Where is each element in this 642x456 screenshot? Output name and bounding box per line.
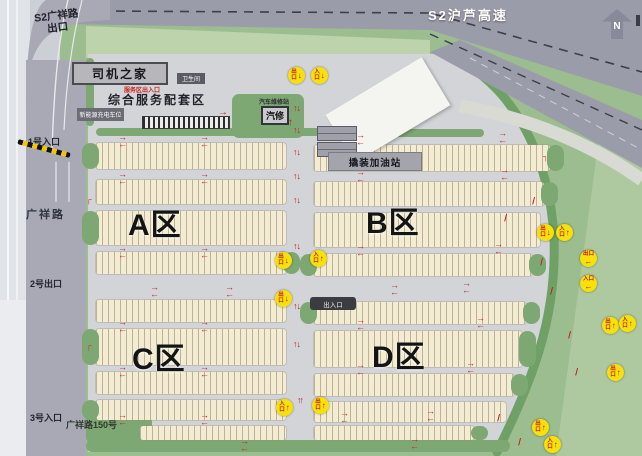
flow-arrow: →← xyxy=(200,171,209,185)
charging-label: 新能源充电车位 xyxy=(79,110,121,119)
flow-arrow: ↑↓ xyxy=(293,340,300,349)
flow-arrow: →← xyxy=(390,282,399,296)
gate-badge: 入口← xyxy=(580,275,597,292)
highway-label: S2沪芦高速 xyxy=(428,5,508,24)
flow-arrow-glyph: ← xyxy=(118,178,127,185)
zone-label-d: D区 xyxy=(372,332,426,376)
gate-badge: 出口← xyxy=(580,250,597,267)
gate-house-label: 出入口 xyxy=(323,299,343,309)
flow-arrow: ↑↓ xyxy=(293,242,300,251)
flow-arrow-glyph: ← xyxy=(426,415,435,422)
gate-badge-text: 出 口 xyxy=(610,367,616,378)
flow-arrow: →← xyxy=(118,134,127,148)
flow-arrow: →← xyxy=(356,243,365,257)
row-green-cap xyxy=(511,374,528,396)
gate-badge-text: 入 口 xyxy=(622,318,628,329)
flow-arrow-glyph: ← xyxy=(118,326,127,333)
gate-badge-text: 出 口 xyxy=(535,422,541,433)
flow-arrow: →← xyxy=(476,315,485,329)
row-green-cap xyxy=(519,331,536,367)
flow-arrow: ┐ xyxy=(543,153,549,161)
flow-arrow: →← xyxy=(118,171,127,185)
flow-arrow: ↑↓ xyxy=(293,104,300,113)
flow-arrow: →← xyxy=(240,438,249,452)
flow-arrow: ┌ xyxy=(86,196,92,204)
flow-arrow: →← xyxy=(498,130,507,144)
gate-badge-text: 出 口 xyxy=(278,293,284,304)
gate-badge: 出 口↓ xyxy=(275,252,292,269)
gate-badge-arrow-icon: ↑ xyxy=(286,404,290,411)
flow-arrow: →← xyxy=(340,410,349,424)
gate-badge-text: 入 口 xyxy=(279,402,285,413)
driver-home-label: 司机之家 xyxy=(92,65,148,82)
row-green-cap xyxy=(82,143,99,169)
row-green-cap xyxy=(471,426,488,440)
parking-row xyxy=(96,211,286,245)
compass-tick xyxy=(636,15,640,26)
flow-arrow: →← xyxy=(150,284,159,298)
flow-arrow-glyph: ← xyxy=(200,419,209,426)
flow-arrow: ↑↑ xyxy=(297,396,302,405)
parking-row xyxy=(314,374,514,396)
flow-arrow: ↑↓ xyxy=(293,196,300,205)
gate-badge-arrow-icon: ↓ xyxy=(321,72,325,79)
flow-arrow: →← xyxy=(118,364,127,378)
gate-badge-arrow-icon: ← xyxy=(585,258,593,265)
flow-arrow-glyph: ← xyxy=(356,250,365,257)
exit2-label: 2号出口 xyxy=(30,277,62,290)
flow-arrow-glyph: ← xyxy=(150,291,159,298)
parking-row xyxy=(314,182,544,206)
flow-arrow-glyph: ← xyxy=(200,252,209,259)
flow-arrow-glyph: ↓ xyxy=(297,148,301,157)
flow-arrow: →← xyxy=(200,245,209,259)
flow-arrow: →← xyxy=(426,408,435,422)
flow-arrow-glyph: ↓ xyxy=(297,196,301,205)
gate-badge-arrow-icon: ↑ xyxy=(629,320,633,327)
zone-label-a: A区 xyxy=(128,200,182,244)
gate-badge: 出 口↓ xyxy=(537,224,554,241)
flow-arrow: → xyxy=(218,108,228,118)
flow-arrow: ↑↓ xyxy=(293,148,300,157)
station-structure xyxy=(317,126,357,141)
north-letter: N xyxy=(602,21,632,32)
gate-badge-arrow-icon: ↑ xyxy=(322,402,326,409)
flow-arrow-glyph: ← xyxy=(390,289,399,296)
flow-arrow-glyph: ┌ xyxy=(86,342,92,350)
flow-arrow-glyph: ← xyxy=(118,252,127,259)
flow-arrow: →← xyxy=(118,245,127,259)
flow-arrow-glyph: ← xyxy=(200,326,209,333)
flow-arrow: →← xyxy=(356,317,365,331)
gate-badge: 入 口↑ xyxy=(310,250,327,267)
flow-arrow-glyph: ← xyxy=(200,141,209,148)
restroom-label: 卫生间 xyxy=(182,74,200,83)
gas-station-building: 撬装加油站 xyxy=(328,152,422,171)
gate-badge-text: 出 口 xyxy=(605,320,611,331)
gate-badge-text: 入 口 xyxy=(559,227,565,238)
gate-badge: 出 口↓ xyxy=(288,67,305,84)
flow-arrow: →← xyxy=(200,364,209,378)
flow-arrow-glyph: ┌ xyxy=(86,196,92,204)
flow-arrow-glyph: ← xyxy=(118,419,127,426)
flow-arrow-glyph: ← xyxy=(498,137,507,144)
row-green-cap xyxy=(547,145,564,171)
flow-arrow-glyph: ← xyxy=(118,371,127,378)
gate-badge: 入 口↑ xyxy=(619,315,636,332)
repair-station-note: 汽车维修站 xyxy=(259,97,289,106)
gate-badge: 出 口↑ xyxy=(532,419,549,436)
gate-badge-arrow-icon: ↓ xyxy=(298,72,302,79)
flow-arrow-glyph: ↓ xyxy=(297,172,301,181)
flow-arrow: →← xyxy=(494,241,503,255)
flow-arrow: →← xyxy=(500,167,509,181)
flow-arrow: →← xyxy=(200,134,209,148)
gate-badge: 出 口↓ xyxy=(275,290,292,307)
restroom-building: 卫生间 xyxy=(177,73,205,84)
flow-arrow: →← xyxy=(356,169,365,183)
flow-arrow: →← xyxy=(410,436,419,450)
row-green-cap xyxy=(523,302,540,324)
gate-badge-arrow-icon: ↓ xyxy=(285,295,289,302)
flow-arrow-glyph: → xyxy=(218,108,228,118)
flow-arrow: →← xyxy=(356,132,365,146)
gate-badge-text: 出 口 xyxy=(315,400,321,411)
gate-badge-arrow-icon: ↑ xyxy=(566,229,570,236)
flow-arrow-glyph: ← xyxy=(466,367,475,374)
charging-spots-building: 新能源充电车位 xyxy=(77,108,124,121)
flow-arrow: ↑↓ xyxy=(293,302,300,311)
flow-arrow-glyph: ← xyxy=(240,445,249,452)
gate-badge: 出 口↑ xyxy=(607,364,624,381)
gate-badge: 入 口↑ xyxy=(544,436,561,453)
gate-badge-arrow-icon: ↑ xyxy=(542,424,546,431)
flow-arrow: →← xyxy=(225,284,234,298)
flow-arrow-glyph: ← xyxy=(356,369,365,376)
gate-badge-text: 出 口 xyxy=(540,227,546,238)
zone-label-b: B区 xyxy=(366,198,420,242)
parking-comb-strip xyxy=(142,116,230,129)
gate-badge: 出 口↑ xyxy=(602,317,619,334)
flow-arrow-glyph: ↓ xyxy=(297,340,301,349)
service-area-title: 综合服务配套区 xyxy=(108,91,206,108)
gate-badge-text: 出 口 xyxy=(291,70,297,81)
flow-arrow-glyph: ← xyxy=(476,322,485,329)
flow-arrow-glyph: ← xyxy=(500,174,509,181)
zone-label-c: C区 xyxy=(132,334,186,378)
flow-arrow-glyph: ↓ xyxy=(297,104,301,113)
flow-arrow-glyph: ← xyxy=(200,371,209,378)
gate-badge: 入 口↑ xyxy=(556,224,573,241)
gate-badge-text: 出 口 xyxy=(278,255,284,266)
gate-badge-text: 入 口 xyxy=(547,439,553,450)
flow-arrow: ┌ xyxy=(86,342,92,350)
flow-arrow: →← xyxy=(356,362,365,376)
flow-arrow-glyph: ← xyxy=(340,417,349,424)
gate-badge-arrow-icon: ↑ xyxy=(320,255,324,262)
gas-station-label: 撬装加油站 xyxy=(349,155,402,169)
parking-row xyxy=(314,254,532,276)
flow-arrow: ↑↓ xyxy=(293,126,300,135)
road-name-label: 广祥路 xyxy=(26,206,65,222)
entrance3-label: 3号入口 xyxy=(30,411,62,424)
parking-row xyxy=(96,329,286,365)
address-label: 广祥路150号 xyxy=(66,418,117,431)
gate-badge-arrow-icon: ↓ xyxy=(547,229,551,236)
gate-badge-arrow-icon: ↑ xyxy=(612,322,616,329)
parking-row xyxy=(140,426,286,440)
gate-badge: 入 口↑ xyxy=(276,399,293,416)
flow-arrow-glyph: ← xyxy=(356,176,365,183)
gate-badge-text: 入 口 xyxy=(313,253,319,264)
facility-map: A区B区C区D区出 口↓入 口↓出 口↓入 口↑出口←入口←出 口↓入 口↑出 … xyxy=(0,0,642,456)
gate-badge-arrow-icon: ↑ xyxy=(554,441,558,448)
parking-row xyxy=(314,426,474,440)
row-green-cap xyxy=(541,182,558,206)
parking-row xyxy=(314,213,540,247)
gate-badge: 入 口↓ xyxy=(311,67,328,84)
driver-home-building: 司机之家 xyxy=(72,62,168,85)
flow-arrow-glyph: ┐ xyxy=(543,153,549,161)
flow-arrow-glyph: ← xyxy=(356,324,365,331)
flow-arrow: →← xyxy=(118,412,127,426)
flow-arrow: →← xyxy=(118,319,127,333)
flow-arrow: ↑↓ xyxy=(293,172,300,181)
flow-arrow: →← xyxy=(462,280,471,294)
row-green-cap xyxy=(82,400,99,420)
gate-house: 出入口 xyxy=(310,297,356,310)
flow-arrow-glyph: ← xyxy=(462,287,471,294)
flow-arrow-glyph: ← xyxy=(200,178,209,185)
gate-badge-text: 入 口 xyxy=(314,70,320,81)
flow-arrow-glyph: ↑↑ xyxy=(297,396,302,405)
gate-badge-arrow-icon: ↓ xyxy=(285,257,289,264)
gate-badge-arrow-icon: ↑ xyxy=(617,369,621,376)
flow-arrow-glyph: ← xyxy=(410,443,419,450)
gate-badge-arrow-icon: ← xyxy=(585,283,593,290)
flow-arrow-glyph: ↓ xyxy=(297,302,301,311)
flow-arrow-glyph: ← xyxy=(118,141,127,148)
row-green-cap xyxy=(529,254,546,276)
gate-badge: 出 口↑ xyxy=(312,397,329,414)
flow-arrow-glyph: ↓ xyxy=(297,242,301,251)
flow-arrow-glyph: ← xyxy=(356,139,365,146)
flow-arrow: →← xyxy=(200,319,209,333)
repair-label: 汽修 xyxy=(266,109,284,122)
flow-arrow-glyph: ← xyxy=(225,291,234,298)
row-green-cap xyxy=(82,211,99,245)
repair-shop-building: 汽修 xyxy=(261,106,289,125)
flow-arrow-glyph: ← xyxy=(494,248,503,255)
north-compass: N xyxy=(602,9,632,39)
flow-arrow: →← xyxy=(200,412,209,426)
flow-arrow: →← xyxy=(466,360,475,374)
flow-arrow-glyph: ↓ xyxy=(297,126,301,135)
